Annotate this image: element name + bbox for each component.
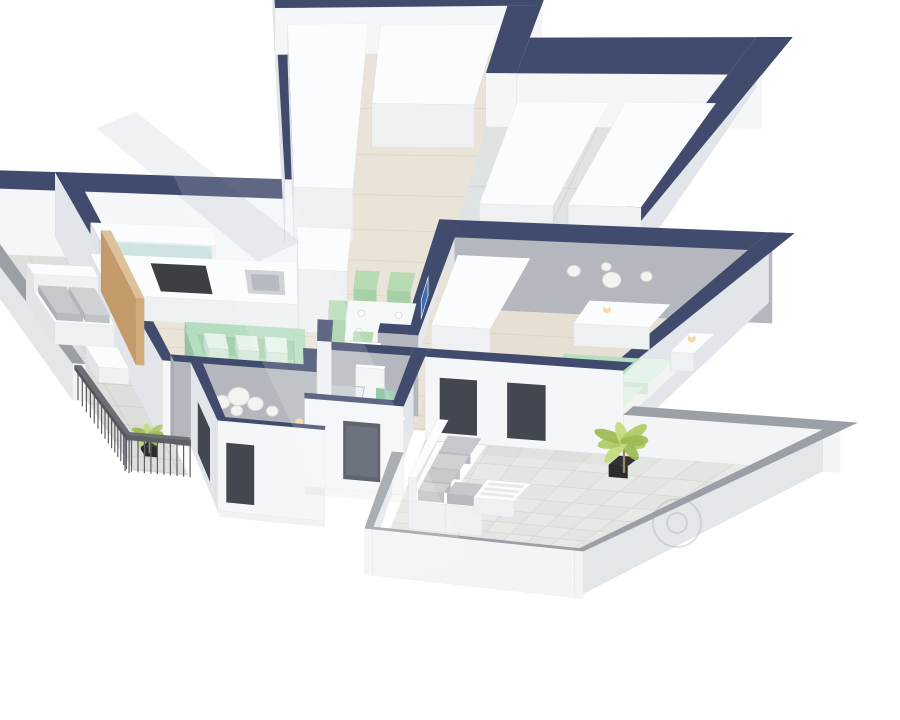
wall-decor-circle — [641, 271, 653, 281]
floor-plan-image — [0, 0, 900, 720]
wall-decor-circle — [228, 387, 249, 405]
floor-plan-3d-render — [0, 0, 900, 720]
wall-decor-circle — [247, 397, 263, 410]
wall-decor-circle — [266, 406, 278, 416]
wall-decor-circle — [601, 263, 611, 271]
place-setting — [395, 312, 401, 318]
wall-decor-circle — [567, 265, 580, 276]
window-bedroom2 — [507, 383, 545, 442]
window-bedroom2 — [440, 378, 477, 436]
wall-decor-circle — [231, 406, 243, 416]
wall-decor-circle — [602, 272, 620, 288]
place-setting — [358, 310, 364, 316]
window-master-south — [226, 443, 254, 505]
